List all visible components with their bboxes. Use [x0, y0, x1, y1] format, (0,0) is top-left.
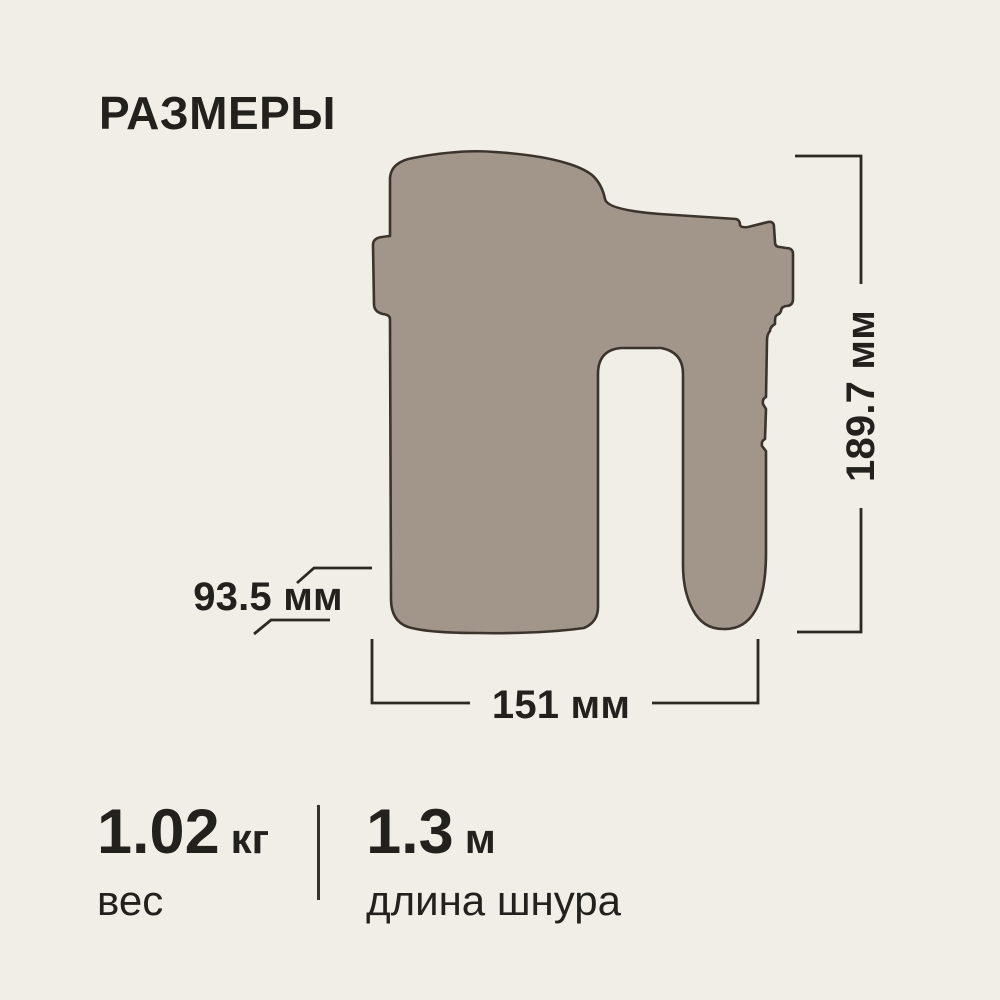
- cord-length-caption: длина шнура: [366, 880, 621, 922]
- cord-length-value-row: 1.3 м: [366, 801, 621, 864]
- weight-caption: вес: [97, 880, 269, 922]
- weight-unit: кг: [231, 818, 270, 860]
- cord-length-stat: 1.3 м длина шнура: [366, 801, 621, 922]
- product-silhouette: [373, 151, 793, 633]
- weight-stat: 1.02 кг вес: [97, 801, 269, 922]
- page-title: РАЗМЕРЫ: [99, 90, 336, 136]
- width-dimension-label: 151 мм: [492, 685, 630, 725]
- infographic-canvas: РАЗМЕРЫ 189.7 мм 151 мм 93.5 мм 1.02 кг …: [0, 0, 1000, 1000]
- depth-dimension-label: 93.5 мм: [193, 577, 343, 617]
- weight-value-row: 1.02 кг: [97, 801, 269, 864]
- stats-divider: [317, 805, 320, 900]
- cord-length-unit: м: [465, 818, 496, 860]
- stats-row: 1.02 кг вес 1.3 м длина шнура: [97, 801, 621, 922]
- weight-value: 1.02: [97, 801, 220, 864]
- cord-length-value: 1.3: [366, 801, 454, 864]
- height-dimension-label: 189.7 мм: [841, 310, 881, 482]
